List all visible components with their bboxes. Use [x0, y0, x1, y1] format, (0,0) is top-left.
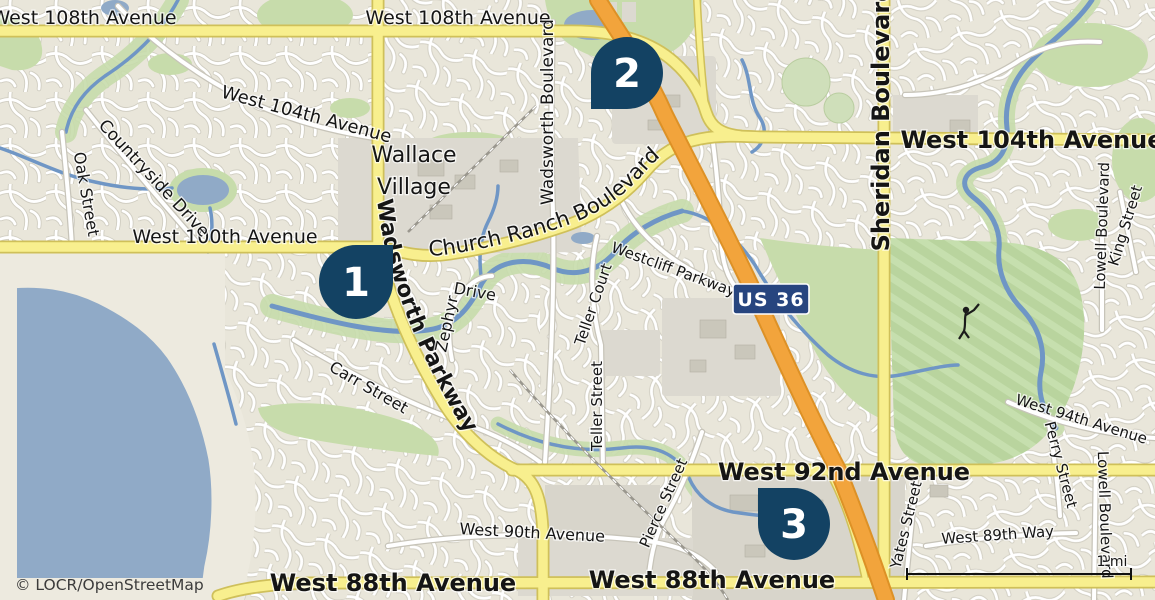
- marker-number: 3: [780, 502, 808, 548]
- scale-label: 1 mi: [1097, 554, 1128, 570]
- pond: [571, 232, 595, 244]
- road-label-west-88th: West 88th Avenue: [270, 569, 516, 597]
- road-label-west-108th: West 108th Avenue: [365, 7, 550, 29]
- road-label-west-100th: West 100th Avenue: [132, 226, 317, 248]
- place-name-line2: Village: [377, 175, 451, 200]
- road-label-wadsworth-blvd: Wadsworth Boulevard: [538, 19, 558, 205]
- road-label-west-88th: West 88th Avenue: [589, 566, 835, 594]
- map-marker-1[interactable]: 1: [319, 245, 393, 319]
- map-canvas: West 108th Avenue West 108th Avenue West…: [0, 0, 1155, 600]
- marker-number: 2: [613, 51, 641, 97]
- map-marker-2[interactable]: 2: [591, 37, 663, 109]
- shield-text: US 36: [737, 289, 804, 311]
- attribution: © LOCR/OpenStreetMap: [15, 576, 204, 594]
- map-marker-3[interactable]: 3: [758, 488, 830, 560]
- street-map: West 108th Avenue West 108th Avenue West…: [0, 0, 1155, 600]
- road-label-sheridan: Sheridan Boulevard: [867, 0, 895, 251]
- marker-number: 1: [342, 260, 370, 306]
- road-label-west-108th: West 108th Avenue: [0, 7, 177, 29]
- highway-shield-us36: US 36: [733, 284, 809, 314]
- road-label-west-104th: West 104th Avenue: [900, 126, 1155, 154]
- place-name-line1: Wallace: [371, 143, 456, 168]
- road-label-teller-street: Teller Street: [588, 361, 606, 452]
- road-label-west-92nd: West 92nd Avenue: [718, 458, 970, 486]
